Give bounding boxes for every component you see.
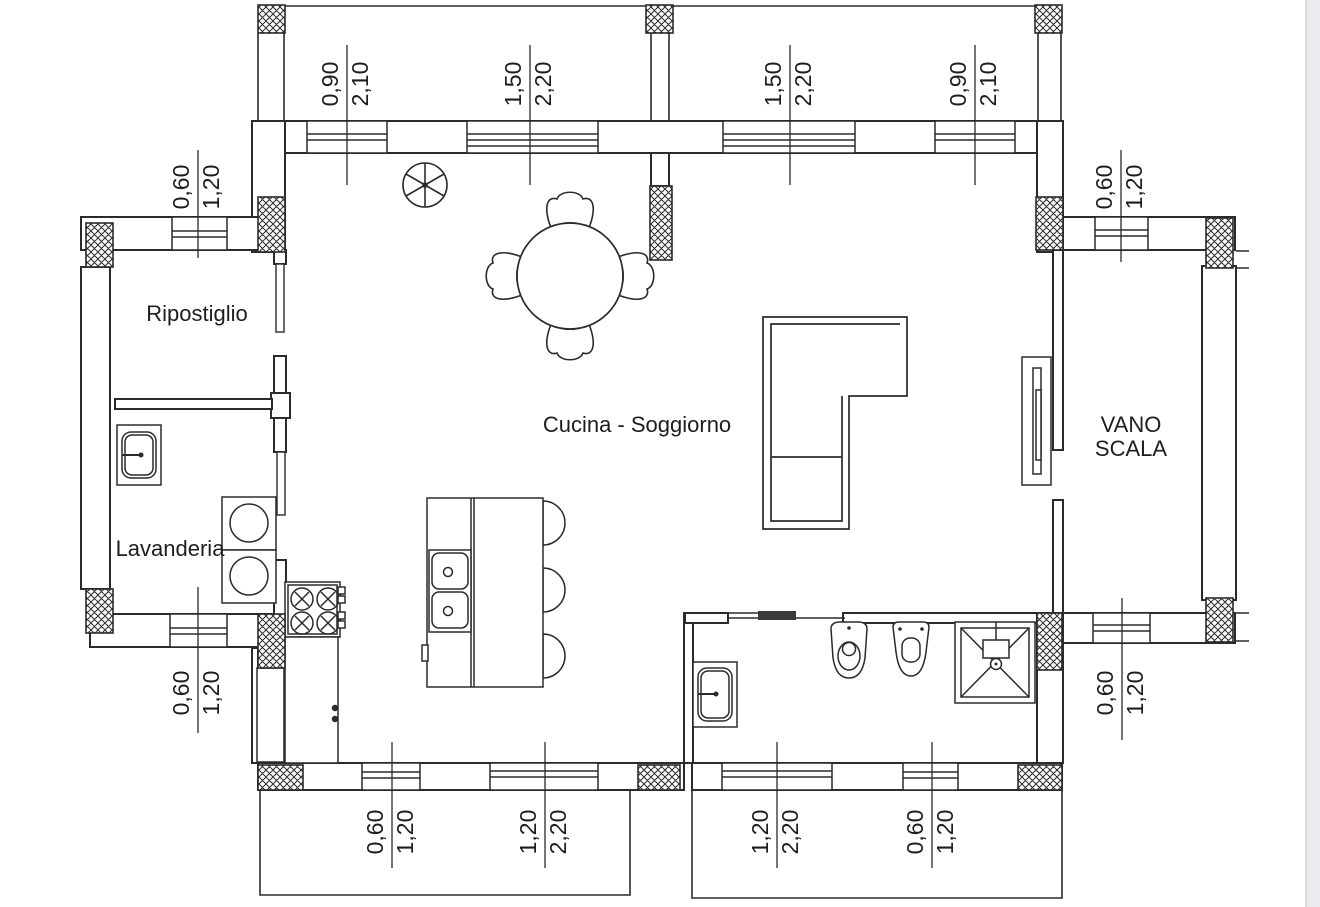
- pillar-hatch: [258, 197, 285, 252]
- pillar-hatch: [258, 614, 285, 668]
- dim-label: 1,50: [760, 62, 786, 107]
- window-top-3: [723, 121, 855, 153]
- dim-label: 2,10: [975, 62, 1001, 107]
- bathroom-left-wall: [684, 613, 693, 763]
- four-burner-cooktop-icon: [285, 582, 345, 637]
- kitchen-counter-icon: [285, 637, 338, 763]
- room-label-vano-scala-line1: VANO: [1101, 412, 1162, 437]
- dim-label: 2,20: [790, 62, 816, 107]
- pillar-hatch: [650, 186, 672, 260]
- door-leaf-lavanderia: [277, 452, 285, 515]
- pillar-stub: [651, 153, 669, 186]
- dim-label: 0,90: [945, 62, 971, 107]
- dim-label: 0,60: [1091, 165, 1117, 210]
- pillar-hatch: [646, 5, 673, 33]
- pillar-hatch: [1206, 598, 1233, 642]
- window-bottom-1: [362, 763, 420, 790]
- pillar-hatch: [1036, 197, 1063, 250]
- door-leaf-ripostiglio: [276, 264, 284, 332]
- pillar-hatch: [258, 5, 285, 33]
- room-label-ripostiglio: Ripostiglio: [146, 301, 248, 326]
- wall-bottom-left: [258, 763, 684, 790]
- dim-label: 0,60: [1092, 671, 1118, 716]
- window-bottom-4: [903, 763, 958, 790]
- dim-label: 2,20: [545, 810, 571, 855]
- pillar-hatch: [1037, 613, 1062, 670]
- floor-plan-canvas: 0,90 2,10 1,50 2,20 1,50 2,20 0,90 2,10 …: [0, 0, 1320, 907]
- dim-label: 0,60: [362, 810, 388, 855]
- stair-partition-lower: [1053, 500, 1063, 613]
- window-annex-left-top: [172, 217, 227, 250]
- laundry-sink-icon: [117, 425, 161, 485]
- dim-label: 1,20: [1121, 165, 1147, 210]
- stair-right-wall: [1202, 266, 1236, 600]
- pillar-hatch: [86, 589, 113, 633]
- kitchen-island-icon: [422, 498, 565, 687]
- stair-partition-upper: [1053, 250, 1063, 450]
- room-label-vano-scala-line2: SCALA: [1095, 436, 1167, 461]
- washing-machine-icon: [222, 497, 276, 603]
- dim-label: 0,60: [168, 671, 194, 716]
- dim-label: 1,20: [198, 671, 224, 716]
- dim-label: 2,20: [530, 62, 556, 107]
- dim-label: 1,20: [198, 165, 224, 210]
- shower-box-icon: [955, 622, 1035, 703]
- dim-label: 1,20: [1122, 671, 1148, 716]
- dim-label: 1,20: [392, 810, 418, 855]
- tall-cabinet-icon: [257, 668, 284, 762]
- pillar-hatch: [1035, 5, 1062, 33]
- dim-label: 2,20: [777, 810, 803, 855]
- dim-label: 0,90: [317, 62, 343, 107]
- island-handle: [422, 645, 428, 661]
- tv-cabinet-icon: [1022, 357, 1051, 485]
- double-sink-icon: [429, 550, 471, 632]
- dim-label: 1,20: [515, 810, 541, 855]
- window-top-2: [467, 121, 598, 153]
- pillar-hatch: [638, 765, 680, 790]
- annex-left-outer-wall: [81, 267, 110, 589]
- partition-end-cap: [271, 393, 290, 418]
- pillar-hatch: [1018, 765, 1062, 790]
- divider-ripostiglio-lavanderia: [115, 399, 272, 409]
- bidet-icon: [831, 622, 867, 678]
- room-label-lavanderia: Lavanderia: [116, 536, 226, 561]
- right-gutter: [1306, 0, 1320, 907]
- partition-lavanderia-a: [274, 418, 286, 452]
- dim-label: 1,20: [747, 810, 773, 855]
- dim-label: 1,20: [932, 810, 958, 855]
- bathroom-top-wall-a: [685, 613, 728, 623]
- floor-plan-drawing: 0,90 2,10 1,50 2,20 1,50 2,20 0,90 2,10 …: [0, 0, 1320, 907]
- pillar-hatch: [1206, 218, 1233, 268]
- window-bottom-2: [490, 763, 598, 790]
- pillar-hatch: [86, 223, 113, 267]
- pillar-hatch: [258, 765, 303, 790]
- sliding-door-panel: [758, 611, 796, 620]
- dim-label: 0,60: [168, 165, 194, 210]
- dim-label: 2,10: [347, 62, 373, 107]
- room-label-cucina-soggiorno: Cucina - Soggiorno: [543, 412, 731, 437]
- dim-label: 0,60: [902, 810, 928, 855]
- bathroom-sink-icon: [693, 662, 737, 727]
- dim-label: 1,50: [500, 62, 526, 107]
